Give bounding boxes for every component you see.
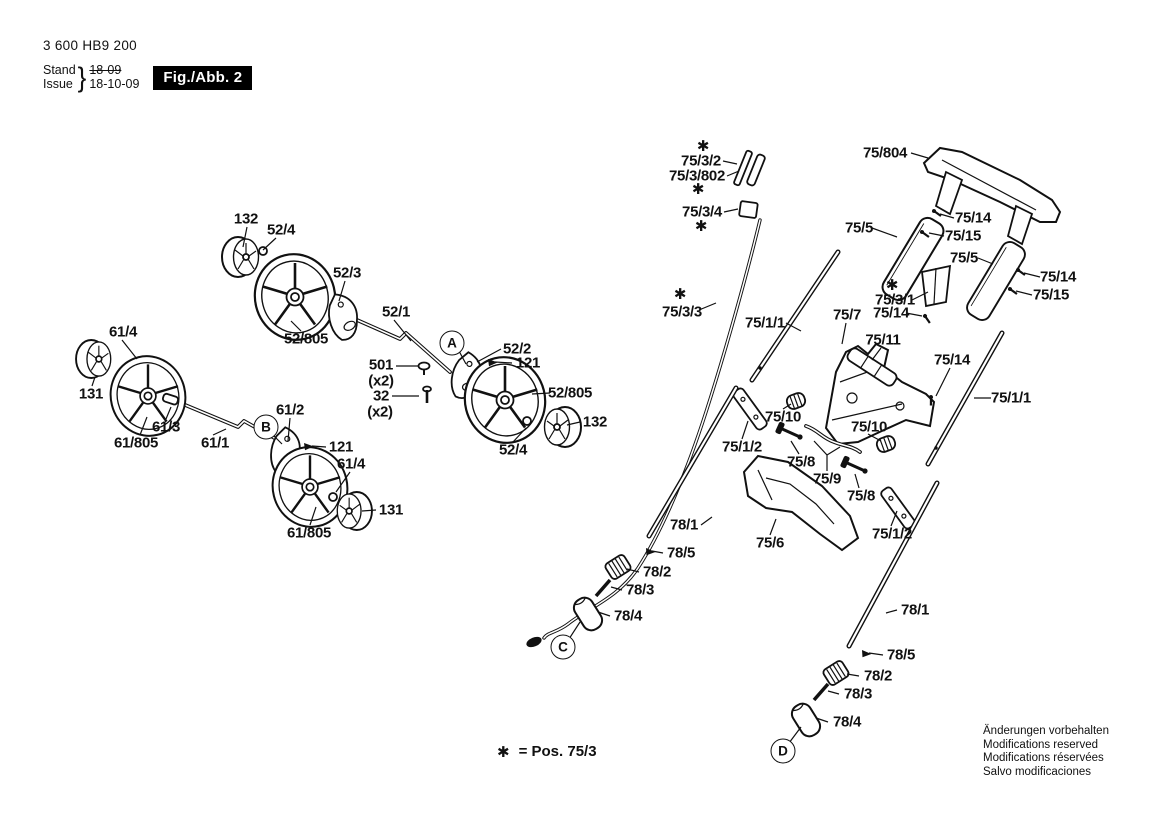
part-label: 75/8 — [847, 488, 875, 505]
issue-labels: Stand Issue — [43, 64, 76, 91]
part-label: 75/5 — [950, 250, 978, 267]
part-label: 52/805 — [284, 331, 328, 348]
issue-date: 18-10-09 — [89, 78, 139, 92]
part-label: 121 — [516, 355, 540, 372]
part-label: 75/14 — [873, 305, 909, 322]
part-label: 75/6 — [756, 535, 784, 552]
part-label: 75/14 — [955, 210, 991, 227]
part-label: ✱ — [674, 285, 686, 303]
part-label: 61/3 — [152, 419, 180, 436]
part-label: 75/10 — [851, 419, 887, 436]
part-label: 132 — [234, 211, 258, 228]
part-label: 75/15 — [1033, 287, 1069, 304]
part-label: 75/804 — [863, 145, 907, 162]
part-label: 78/3 — [626, 582, 654, 599]
part-label: 75/7 — [833, 307, 861, 324]
brace-glyph: } — [78, 61, 87, 94]
part-label: 52/805 — [548, 385, 592, 402]
part-label: 61/4 — [109, 324, 137, 341]
title-block: 3 600 HB9 200 Stand Issue } 18-09 18-10-… — [43, 38, 252, 93]
part-label: 61/805 — [114, 435, 158, 452]
part-label: 75/9 — [813, 471, 841, 488]
part-label: 52/4 — [267, 222, 295, 239]
part-label: 61/2 — [276, 402, 304, 419]
part-label: 78/4 — [833, 714, 861, 731]
asterisk-footnote: ✱ = Pos. 75/3 — [497, 743, 597, 761]
part-label: 75/11 — [865, 332, 900, 349]
notice-line-es: Salvo modificaciones — [983, 766, 1109, 780]
part-label: (x2) — [367, 404, 392, 421]
issue-dates: 18-09 18-10-09 — [89, 64, 139, 91]
reference-circle-d: D — [771, 739, 796, 764]
figure-number-badge: Fig./Abb. 2 — [153, 66, 252, 90]
notice-line-en: Modifications reserved — [983, 739, 1109, 753]
document-part-number: 3 600 HB9 200 — [43, 38, 252, 53]
reference-circle-b: B — [254, 415, 279, 440]
part-label: 78/1 — [901, 602, 929, 619]
part-label: 75/3/3 — [662, 304, 702, 321]
asterisk-symbol: ✱ — [497, 743, 510, 761]
part-label: 131 — [379, 502, 403, 519]
part-label: 78/4 — [614, 608, 642, 625]
part-label: 78/2 — [643, 564, 671, 581]
part-label: 75/8 — [787, 454, 815, 471]
notice-line-de: Änderungen vorbehalten — [983, 725, 1109, 739]
part-label: 132 — [583, 414, 607, 431]
modifications-notice: Änderungen vorbehalten Modifications res… — [983, 725, 1109, 779]
part-label: 75/1/2 — [722, 439, 762, 456]
part-label: 501 — [369, 357, 393, 374]
part-label: 75/15 — [945, 228, 981, 245]
part-label: 75/1/2 — [872, 526, 912, 543]
part-label: 78/5 — [667, 545, 695, 562]
part-label: 61/4 — [337, 456, 365, 473]
part-label: 75/14 — [934, 352, 970, 369]
part-label: 78/5 — [887, 647, 915, 664]
part-label: 61/1 — [201, 435, 229, 452]
issue-label: Issue — [43, 78, 76, 92]
part-label: 78/1 — [670, 517, 698, 534]
part-label: 78/3 — [844, 686, 872, 703]
part-label: 131 — [79, 386, 103, 403]
part-label: 61/805 — [287, 525, 331, 542]
part-label: 75/1/1 — [991, 390, 1031, 407]
reference-circle-a: A — [440, 331, 465, 356]
part-label: 75/1/1 — [745, 315, 785, 332]
reference-circle-c: C — [551, 635, 576, 660]
part-label: ✱ — [692, 180, 704, 198]
asterisk-text: = Pos. 75/3 — [519, 743, 597, 761]
part-label: 75/5 — [845, 220, 873, 237]
old-issue-date: 18-09 — [89, 64, 139, 78]
parts-diagram-page: 3 600 HB9 200 Stand Issue } 18-09 18-10-… — [0, 0, 1169, 826]
part-label: 32 — [373, 388, 389, 405]
notice-line-fr: Modifications réservées — [983, 752, 1109, 766]
issue-row: Stand Issue } 18-09 18-10-09 Fig./Abb. 2 — [43, 62, 252, 93]
part-label: 52/4 — [499, 442, 527, 459]
part-label: ✱ — [695, 217, 707, 235]
part-label: 78/2 — [864, 668, 892, 685]
part-label: 121 — [329, 439, 353, 456]
part-label: 52/3 — [333, 265, 361, 282]
part-label: 52/1 — [382, 304, 410, 321]
part-label: 75/14 — [1040, 269, 1076, 286]
part-label: 75/10 — [765, 409, 801, 426]
stand-label: Stand — [43, 64, 76, 78]
